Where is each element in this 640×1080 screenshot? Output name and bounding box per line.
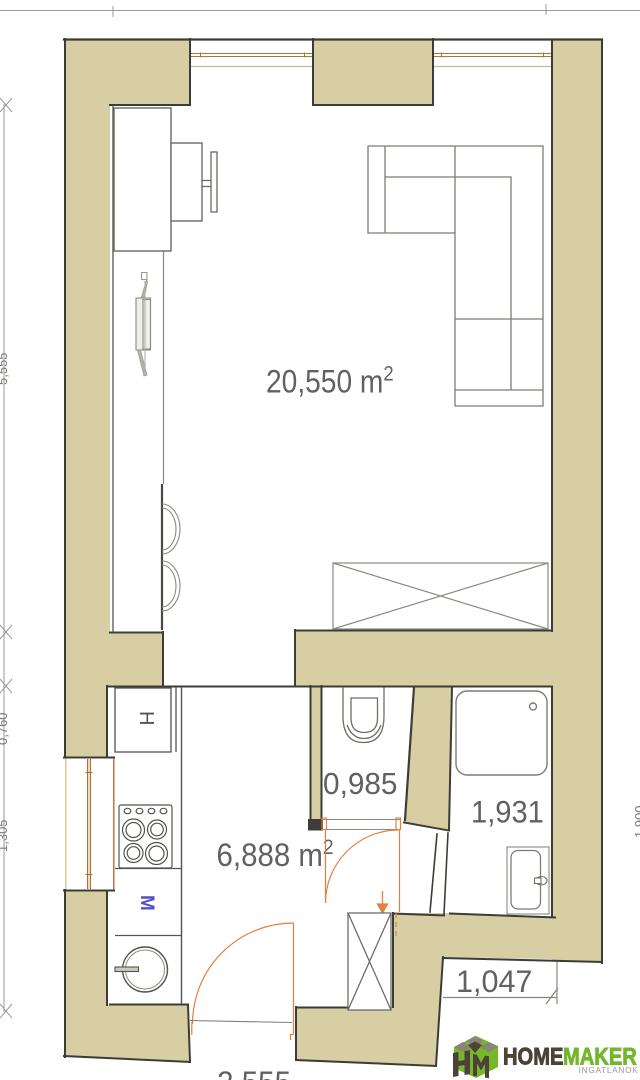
- svg-text:1,900: 1,900: [632, 805, 640, 838]
- svg-text:INGATLANOK: INGATLANOK: [579, 1065, 639, 1075]
- svg-text:2,555: 2,555: [217, 1065, 291, 1080]
- svg-text:5,555: 5,555: [0, 352, 10, 385]
- svg-text:20,550 m2: 20,550 m2: [266, 362, 394, 399]
- svg-text:H: H: [135, 711, 157, 725]
- svg-text:1,047: 1,047: [456, 964, 532, 1000]
- svg-text:0,760: 0,760: [0, 712, 10, 745]
- svg-text:1,305: 1,305: [0, 819, 10, 852]
- svg-text:M: M: [136, 895, 157, 911]
- svg-text:1,931: 1,931: [471, 796, 544, 830]
- svg-text:0,985: 0,985: [323, 766, 397, 801]
- svg-text:6,888 m2: 6,888 m2: [217, 836, 334, 873]
- svg-text:HOME: HOME: [503, 1043, 563, 1070]
